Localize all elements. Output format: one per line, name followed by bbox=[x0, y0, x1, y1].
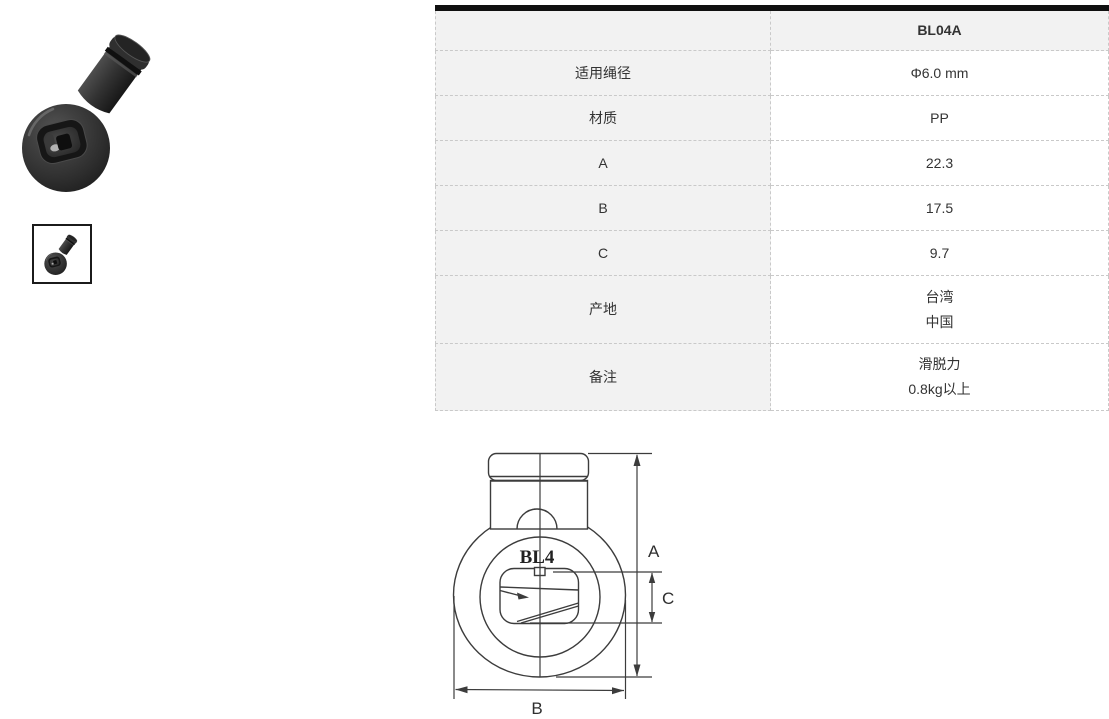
technical-drawing: BL4 A C B bbox=[425, 425, 730, 719]
product-photo bbox=[6, 32, 176, 192]
spec-value-line: 滑脱力 bbox=[919, 352, 961, 377]
spec-value: 台湾 中国 bbox=[771, 276, 1109, 344]
spec-value: 17.5 bbox=[771, 186, 1109, 231]
table-row: 产地 台湾 中国 bbox=[435, 276, 1109, 344]
product-thumbnail-image bbox=[40, 234, 84, 275]
spec-value-line: 台湾 bbox=[926, 285, 954, 310]
spec-value: PP bbox=[771, 96, 1109, 141]
spec-table: BL04A 适用绳径 Φ6.0 mm 材质 PP A 22.3 B 17.5 C… bbox=[435, 5, 1109, 411]
spec-label: 备注 bbox=[435, 344, 771, 411]
spec-value-line: 17.5 bbox=[926, 196, 953, 221]
dim-c-label: C bbox=[662, 589, 674, 608]
spec-label: 适用绳径 bbox=[435, 51, 771, 96]
table-row: 材质 PP bbox=[435, 96, 1109, 141]
dim-a-label: A bbox=[648, 542, 660, 561]
spec-value-line: 9.7 bbox=[930, 241, 949, 266]
product-thumbnail[interactable] bbox=[32, 224, 92, 284]
spec-label: A bbox=[435, 141, 771, 186]
spec-value: 22.3 bbox=[771, 141, 1109, 186]
spec-value-line: 22.3 bbox=[926, 151, 953, 176]
table-row: 备注 滑脱力 0.8kg以上 bbox=[435, 344, 1109, 411]
table-row: C 9.7 bbox=[435, 231, 1109, 276]
table-header-row: BL04A bbox=[435, 11, 1109, 51]
spec-label: C bbox=[435, 231, 771, 276]
header-empty-cell bbox=[435, 11, 771, 51]
spec-label: 材质 bbox=[435, 96, 771, 141]
drawing-cap bbox=[489, 454, 589, 530]
spec-label: B bbox=[435, 186, 771, 231]
spec-value: 9.7 bbox=[771, 231, 1109, 276]
table-row: 适用绳径 Φ6.0 mm bbox=[435, 51, 1109, 96]
spec-label: 产地 bbox=[435, 276, 771, 344]
cord-lock-render bbox=[22, 32, 154, 192]
spec-value-line: 中国 bbox=[926, 310, 954, 335]
table-row: A 22.3 bbox=[435, 141, 1109, 186]
spec-value-line: Φ6.0 mm bbox=[911, 61, 969, 86]
spec-value: 滑脱力 0.8kg以上 bbox=[771, 344, 1109, 411]
model-header-cell: BL04A bbox=[771, 11, 1109, 51]
dim-b-label: B bbox=[531, 699, 542, 718]
drawing-model-label: BL4 bbox=[520, 547, 555, 568]
table-row: B 17.5 bbox=[435, 186, 1109, 231]
spec-value: Φ6.0 mm bbox=[771, 51, 1109, 96]
spec-value-line: 0.8kg以上 bbox=[908, 377, 970, 402]
spec-value-line: PP bbox=[930, 106, 949, 131]
